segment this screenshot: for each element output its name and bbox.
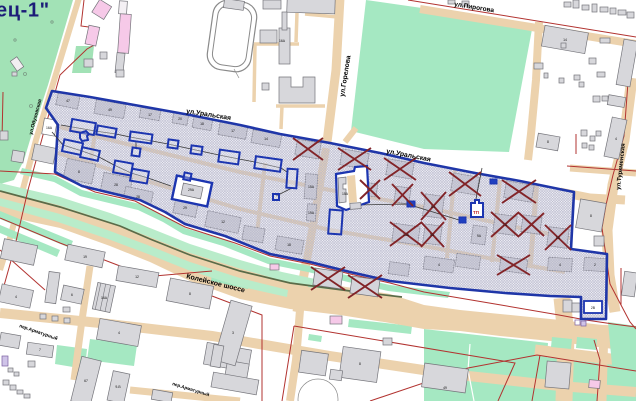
svg-text:2В: 2В: [591, 306, 596, 310]
svg-text:47: 47: [66, 99, 70, 103]
svg-text:19: 19: [83, 255, 87, 259]
svg-text:8: 8: [189, 292, 191, 296]
svg-text:49: 49: [443, 386, 447, 390]
svg-text:67: 67: [84, 379, 88, 383]
svg-text:4: 4: [438, 263, 440, 267]
svg-text:3: 3: [232, 331, 234, 335]
svg-text:9-В: 9-В: [115, 385, 121, 389]
svg-text:7А: 7А: [503, 223, 508, 227]
svg-text:18: 18: [200, 122, 204, 126]
svg-text:4: 4: [559, 263, 561, 267]
svg-text:16А: 16А: [279, 39, 286, 43]
svg-text:29: 29: [183, 206, 187, 210]
svg-text:29А: 29А: [188, 188, 195, 192]
svg-text:8: 8: [78, 170, 80, 174]
svg-text:8: 8: [547, 140, 549, 144]
svg-text:7: 7: [39, 348, 41, 352]
svg-text:8: 8: [590, 214, 592, 218]
svg-text:16А: 16А: [101, 296, 108, 300]
svg-text:ец-1": ец-1": [0, 0, 50, 22]
svg-text:20: 20: [178, 117, 182, 121]
svg-text:28: 28: [114, 183, 118, 187]
svg-text:4: 4: [615, 137, 617, 141]
svg-text:6: 6: [71, 293, 73, 297]
svg-text:8: 8: [359, 362, 361, 366]
svg-text:4: 4: [118, 331, 120, 335]
svg-text:9А: 9А: [477, 234, 482, 238]
svg-text:13А: 13А: [403, 233, 410, 237]
svg-text:4: 4: [15, 295, 17, 299]
svg-text:19А: 19А: [308, 211, 315, 215]
svg-text:17: 17: [231, 129, 235, 133]
svg-text:16А: 16А: [46, 126, 53, 130]
svg-text:15А: 15А: [308, 185, 315, 189]
svg-text:ТП: ТП: [473, 210, 479, 215]
svg-text:5А: 5А: [431, 205, 436, 209]
svg-text:9А: 9А: [430, 233, 435, 237]
svg-text:2: 2: [594, 263, 596, 267]
svg-text:14: 14: [563, 38, 567, 42]
svg-text:12: 12: [135, 275, 139, 279]
svg-text:5В: 5В: [556, 236, 561, 240]
svg-text:14: 14: [264, 137, 268, 141]
svg-text:17: 17: [148, 113, 152, 117]
svg-text:12: 12: [221, 220, 225, 224]
svg-text:18: 18: [287, 243, 291, 247]
svg-text:15А: 15А: [342, 192, 349, 196]
svg-text:49: 49: [108, 108, 112, 112]
svg-text:28: 28: [136, 195, 140, 199]
